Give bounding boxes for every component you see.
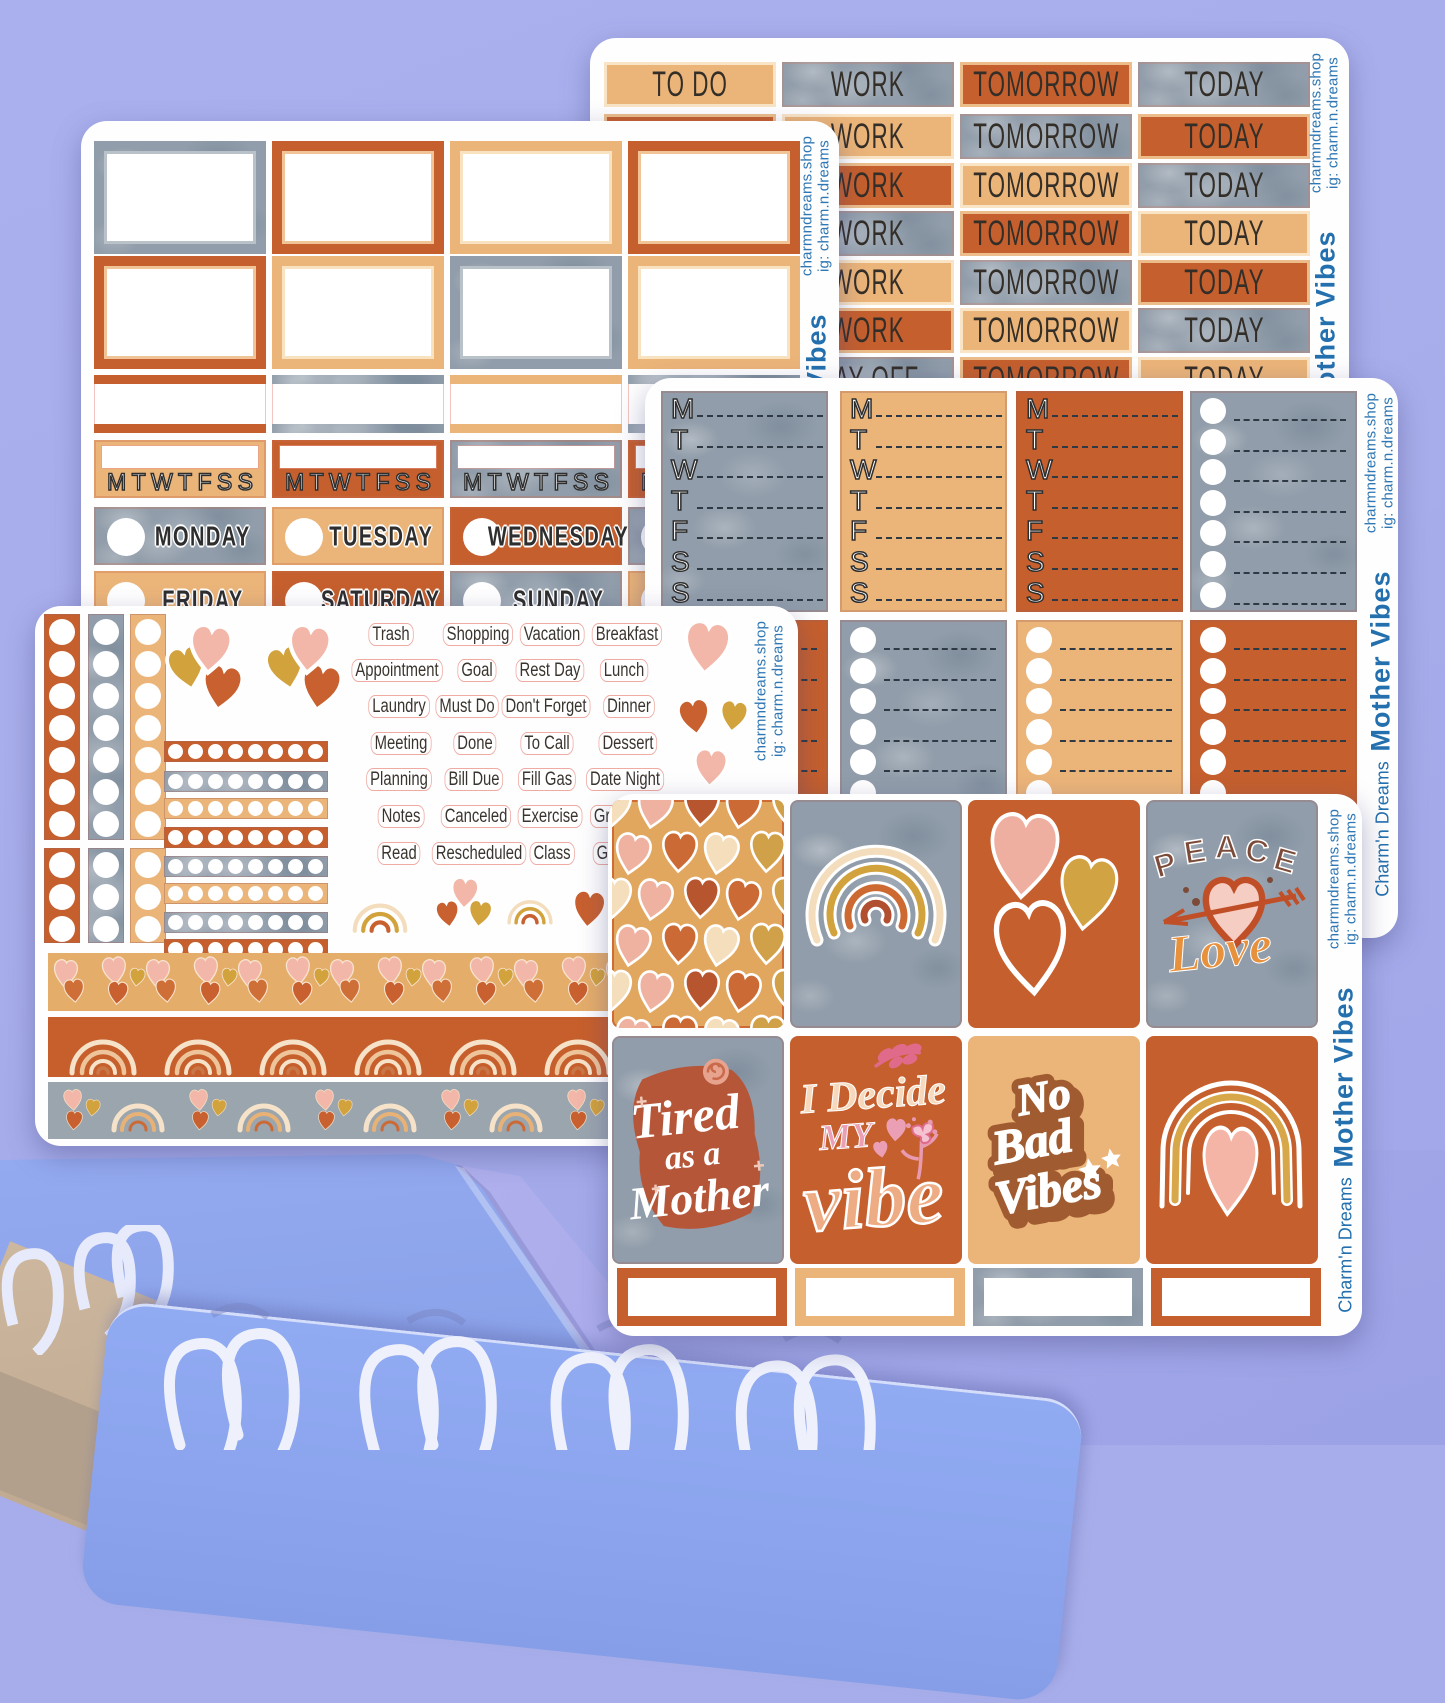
- svg-text:P: P: [1150, 844, 1180, 884]
- svg-text:A: A: [1215, 829, 1238, 865]
- svg-text:C: C: [1243, 831, 1271, 870]
- svg-text:MY: MY: [817, 1114, 878, 1158]
- svg-text:E: E: [1181, 832, 1208, 871]
- svg-text:vibe: vibe: [800, 1148, 946, 1251]
- svg-text:E: E: [1270, 840, 1300, 880]
- svg-text:I Decide: I Decide: [798, 1067, 948, 1123]
- svg-text:Love: Love: [1164, 916, 1274, 984]
